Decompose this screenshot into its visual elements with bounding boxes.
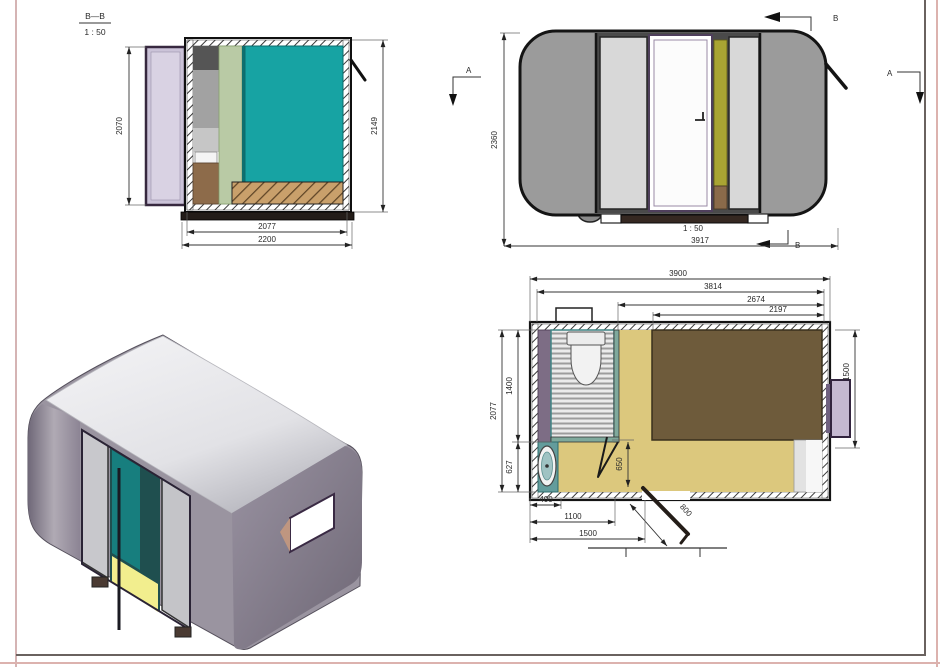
dim-2674: 2674 [747,295,765,304]
section-arrow-b-top [764,12,780,22]
cabinet-top-dark [193,46,219,70]
dim-3900: 3900 [669,269,687,278]
plan-wall-top [532,324,828,330]
marker-b-top: B [833,14,838,23]
bottom-rail [621,215,748,223]
section-line-a-left [453,77,481,94]
drawing-sheet: B—B 1 : 50 2070 2149 2077 [0,0,940,667]
side-elevation: B A A B 2360 3917 1 : 50 [449,12,924,250]
dim-3814: 3814 [704,282,722,291]
teal-wall-panel [245,46,343,182]
marker-a-left: A [466,66,472,75]
dim-1100: 1100 [564,512,582,521]
iso-foot-left [92,577,108,587]
section-line-a-right [897,72,920,92]
side-scale: 1 : 50 [683,224,704,233]
dim-1400: 1400 [505,377,514,395]
section-arrow-b-bottom [756,240,770,248]
cabinet-light-gray [193,128,219,152]
entry-door-hook [681,534,688,543]
side-window-panel-left [600,37,647,209]
dim-2149: 2149 [370,117,379,135]
roof-handle [826,64,846,88]
cabinet-brown-base [193,163,219,204]
base-rail [181,212,354,220]
dim-650: 650 [615,457,624,471]
bathroom-partition-wall [614,330,619,442]
floor-plan: 800 650 3900 3814 2674 2197 2077 1400 62… [489,269,860,557]
section-arrow-a-left [449,94,457,106]
section-arrow-a-right [916,92,924,104]
bath-wall-strip [538,330,551,442]
roof-vent [556,308,592,322]
section-view-bb: B—B 1 : 50 2070 2149 2077 [79,11,388,249]
plan-wall-left [532,324,538,498]
roof-handle [351,60,365,80]
dim-2077: 2077 [258,222,276,231]
dim-800: 800 [678,502,694,518]
section-scale: 1 : 50 [84,27,106,37]
dim-3917: 3917 [691,236,709,245]
green-partition [219,46,242,204]
side-window-panel-right [729,37,759,209]
section-line-b-bottom [770,230,788,244]
wall-hatch-bottom [187,204,349,210]
toilet-tank [567,332,605,345]
dim-1500-bottom: 1500 [579,529,597,538]
door-side-panel-left [82,430,108,578]
door-side-panel-right [162,479,190,628]
door-leaf [654,40,707,206]
wall-hatch-top [187,40,349,46]
wall-hatch-left [187,40,193,210]
foot-right [748,214,768,223]
cabinet-mid-gray [193,70,219,128]
dim-2070: 2070 [115,117,124,135]
hatched-floor-section [232,182,343,204]
dim-2077-plan: 2077 [489,402,498,420]
section-label: B—B [85,11,105,21]
foot-left [601,214,621,223]
dim-400: 400 [539,495,553,504]
basin-drain [545,464,549,468]
bathroom-partition-wall-bottom [551,437,619,442]
cabinet-plan-face [806,440,822,492]
cabinet-drawer [195,152,217,163]
dim-1500-right: 1500 [842,363,851,381]
iso-view [28,335,362,650]
dim-line-800 [630,504,667,546]
pod-end-cap [28,404,80,560]
wall-hatch-right [343,40,349,210]
dim-2360: 2360 [490,131,499,149]
side-window-plan [831,380,850,437]
marker-b-bottom: B [795,241,800,250]
iso-foot-right [175,627,191,637]
brown-block [714,186,727,209]
olive-strip [714,40,727,186]
doorway-teal-wall [112,450,140,570]
dim-2200: 2200 [258,235,276,244]
section-line-b-top [780,17,811,31]
marker-a-right: A [887,69,893,78]
open-door-inner [151,52,180,200]
bed [652,330,822,440]
dim-627: 627 [505,460,514,474]
dim-2197: 2197 [769,305,787,314]
